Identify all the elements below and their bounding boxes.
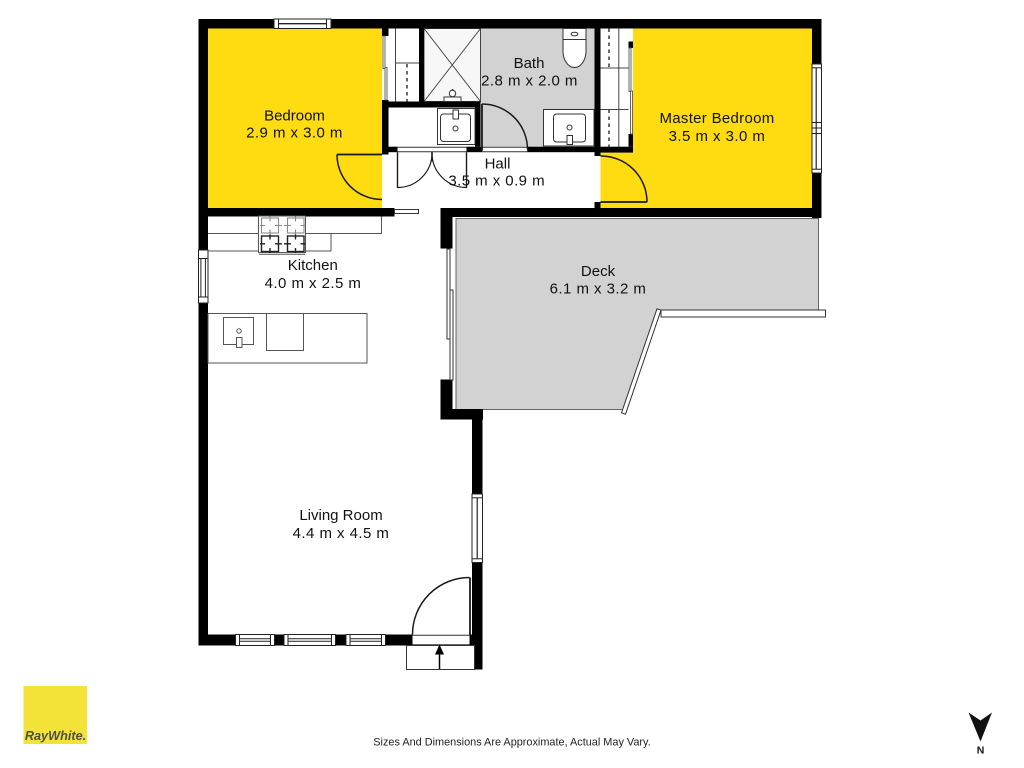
svg-text:Deck: Deck [581,263,616,280]
svg-text:3.5 m x 0.9 m: 3.5 m x 0.9 m [448,173,545,190]
svg-text:3.5 m x 3.0 m: 3.5 m x 3.0 m [669,128,766,145]
svg-text:Living Room: Living Room [299,507,382,524]
svg-text:4.0 m x 2.5 m: 4.0 m x 2.5 m [265,275,362,292]
svg-text:N: N [977,745,985,757]
svg-text:Bedroom: Bedroom [264,108,325,125]
svg-text:RayWhite.: RayWhite. [25,729,86,743]
svg-text:Hall: Hall [485,156,511,173]
svg-text:Kitchen: Kitchen [288,257,338,274]
svg-text:Sizes And Dimensions Are Appro: Sizes And Dimensions Are Approximate, Ac… [373,737,650,749]
svg-text:2.9 m x 3.0 m: 2.9 m x 3.0 m [246,125,343,142]
svg-text:2.8 m x 2.0 m: 2.8 m x 2.0 m [481,73,578,90]
svg-text:6.1 m x 3.2 m: 6.1 m x 3.2 m [550,281,647,298]
svg-text:Master Bedroom: Master Bedroom [659,110,774,127]
svg-text:4.4 m x 4.5 m: 4.4 m x 4.5 m [293,525,390,542]
svg-text:Bath: Bath [514,55,545,72]
